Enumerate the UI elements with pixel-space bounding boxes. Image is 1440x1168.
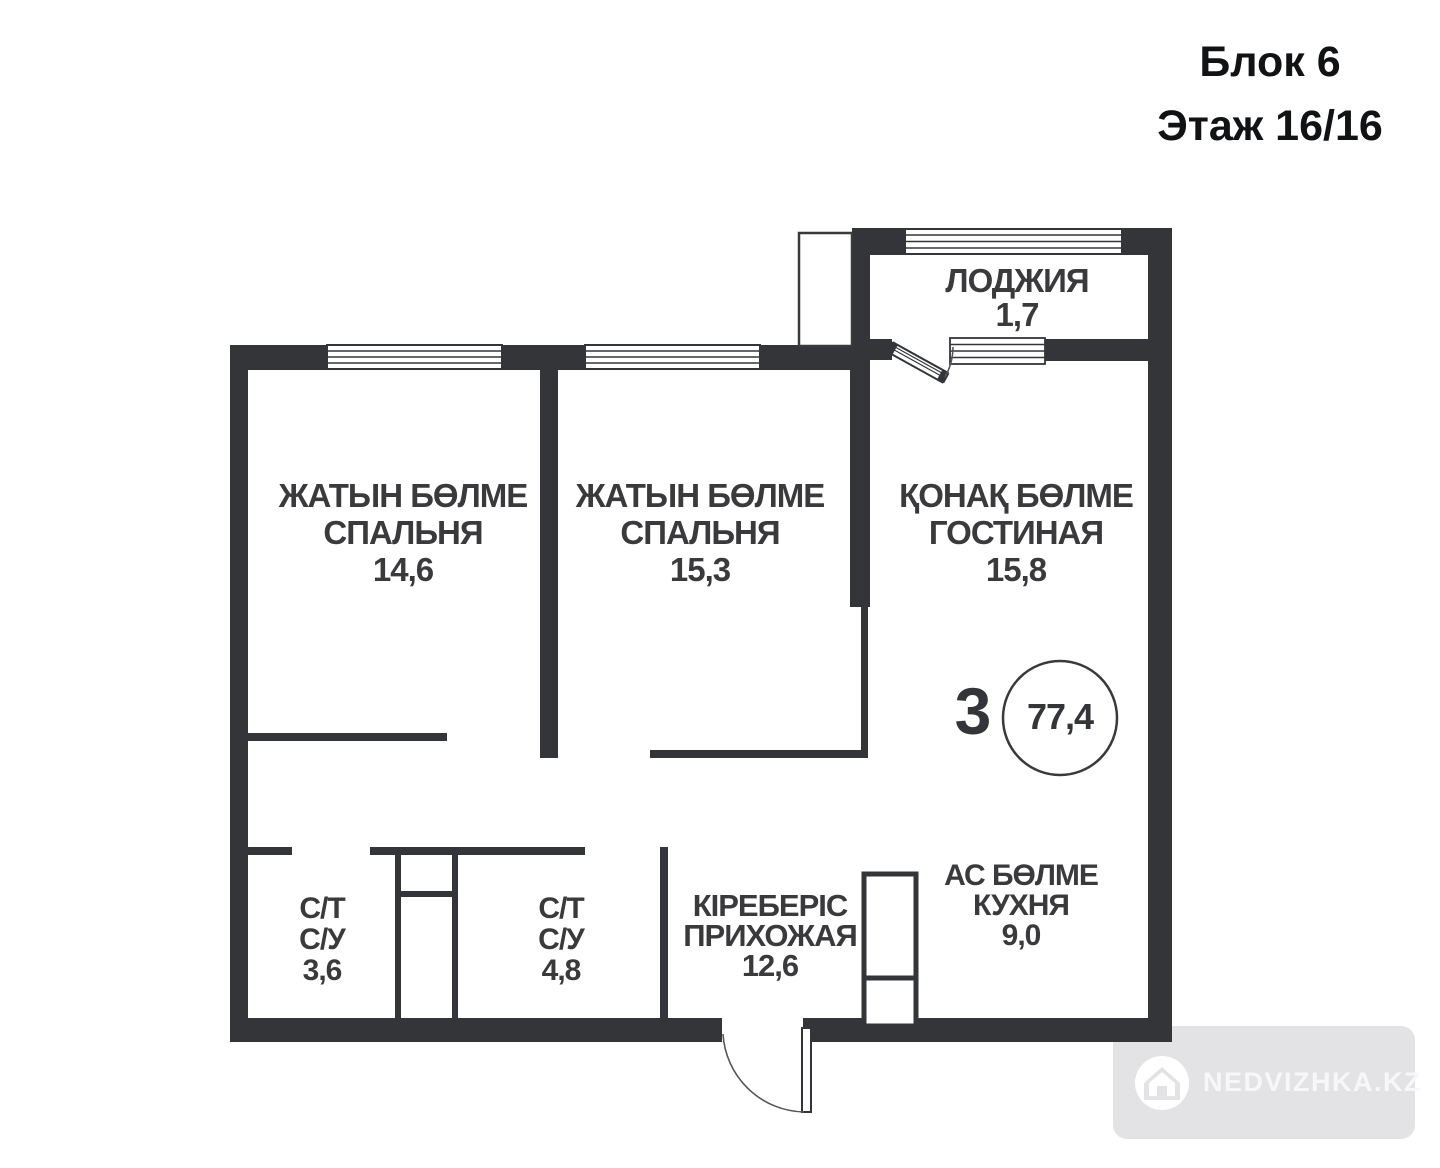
bath-shaft-divider [395, 891, 458, 897]
room-name-kk: ЖАТЫН БӨЛМЕ [279, 477, 528, 514]
window-bedroom-2 [585, 345, 760, 369]
apartment-total-area: 77,4 [1027, 696, 1093, 738]
room-label-loggia: ЛОДЖИЯ 1,7 [945, 264, 1088, 332]
wall-bath2-hall-divider [660, 847, 668, 1028]
balcony-door [885, 341, 953, 383]
window-loggia-top [905, 229, 1122, 254]
wall-bedroom2-living-thin [861, 607, 868, 758]
window-loggia-small [950, 338, 1045, 364]
room-label-hallway: КІРЕБЕРІС ПРИХОЖАЯ 12,6 [683, 891, 857, 981]
wall-bedroom1-bottom [248, 733, 447, 741]
room-name-ru: С/У [299, 924, 345, 955]
room-name-ru: ГОСТИНАЯ [899, 514, 1133, 551]
room-area: 14,6 [279, 551, 528, 588]
room-area: 15,3 [576, 551, 825, 588]
room-label-bath-2: С/Т С/У 4,8 [538, 893, 584, 986]
bath-shaft-left-wall [395, 855, 401, 1022]
wall-loggia-bottom-right [1040, 339, 1148, 361]
entry-door [723, 1028, 811, 1112]
kitchen-shaft [864, 874, 916, 1026]
wall-top-main [230, 345, 868, 370]
entry-door-arc [723, 1034, 804, 1112]
room-name-kk: ЖАТЫН БӨЛМЕ [576, 477, 825, 514]
room-name-kk: ҚОНАҚ БӨЛМЕ [899, 477, 1133, 514]
neighbour-loggia-outline [799, 233, 852, 346]
wall-outer-right [1148, 228, 1172, 1042]
wall-bath1-top [248, 847, 292, 855]
room-label-bedroom-1: ЖАТЫН БӨЛМЕ СПАЛЬНЯ 14,6 [279, 477, 528, 588]
window-bedroom-1 [327, 345, 502, 369]
wall-bedroom2-bottom [650, 750, 868, 758]
room-area: 3,6 [299, 955, 345, 986]
room-area: 1,7 [945, 298, 1088, 332]
room-label-kitchen: АС БӨЛМЕ КУХНЯ 9,0 [944, 861, 1098, 951]
room-name-ru: КУХНЯ [944, 891, 1098, 921]
room-area: 15,8 [899, 551, 1133, 588]
room-area: 12,6 [683, 951, 857, 981]
room-area: 4,8 [538, 955, 584, 986]
room-area: 9,0 [944, 921, 1098, 951]
room-label-living: ҚОНАҚ БӨЛМЕ ГОСТИНАЯ 15,8 [899, 477, 1133, 588]
room-name-kk: КІРЕБЕРІС [683, 891, 857, 921]
apartment-rooms-count: 3 [955, 673, 992, 749]
wall-bath2-top [370, 847, 585, 855]
room-name-ru: СПАЛЬНЯ [576, 514, 825, 551]
room-name-ru: С/У [538, 924, 584, 955]
room-name-kk: С/Т [299, 893, 345, 924]
bath-shaft-right-wall [452, 855, 458, 1022]
wall-bottom-right [803, 1018, 1172, 1042]
room-name-ru: СПАЛЬНЯ [279, 514, 528, 551]
room-name-kk: АС БӨЛМЕ [944, 861, 1098, 891]
room-name-kk: С/Т [538, 893, 584, 924]
floor-plan-page: Блок 6 Этаж 16/16 NEDVIZHKA.KZ [0, 0, 1440, 1168]
wall-bottom-left [230, 1018, 722, 1042]
wall-outer-left [230, 345, 248, 1042]
room-name-ru: ПРИХОЖАЯ [683, 921, 857, 951]
wall-bedrooms-divider [540, 370, 558, 758]
room-label-bath-1: С/Т С/У 3,6 [299, 893, 345, 986]
room-name-kk: ЛОДЖИЯ [945, 264, 1088, 298]
room-label-bedroom-2: ЖАТЫН БӨЛМЕ СПАЛЬНЯ 15,3 [576, 477, 825, 588]
